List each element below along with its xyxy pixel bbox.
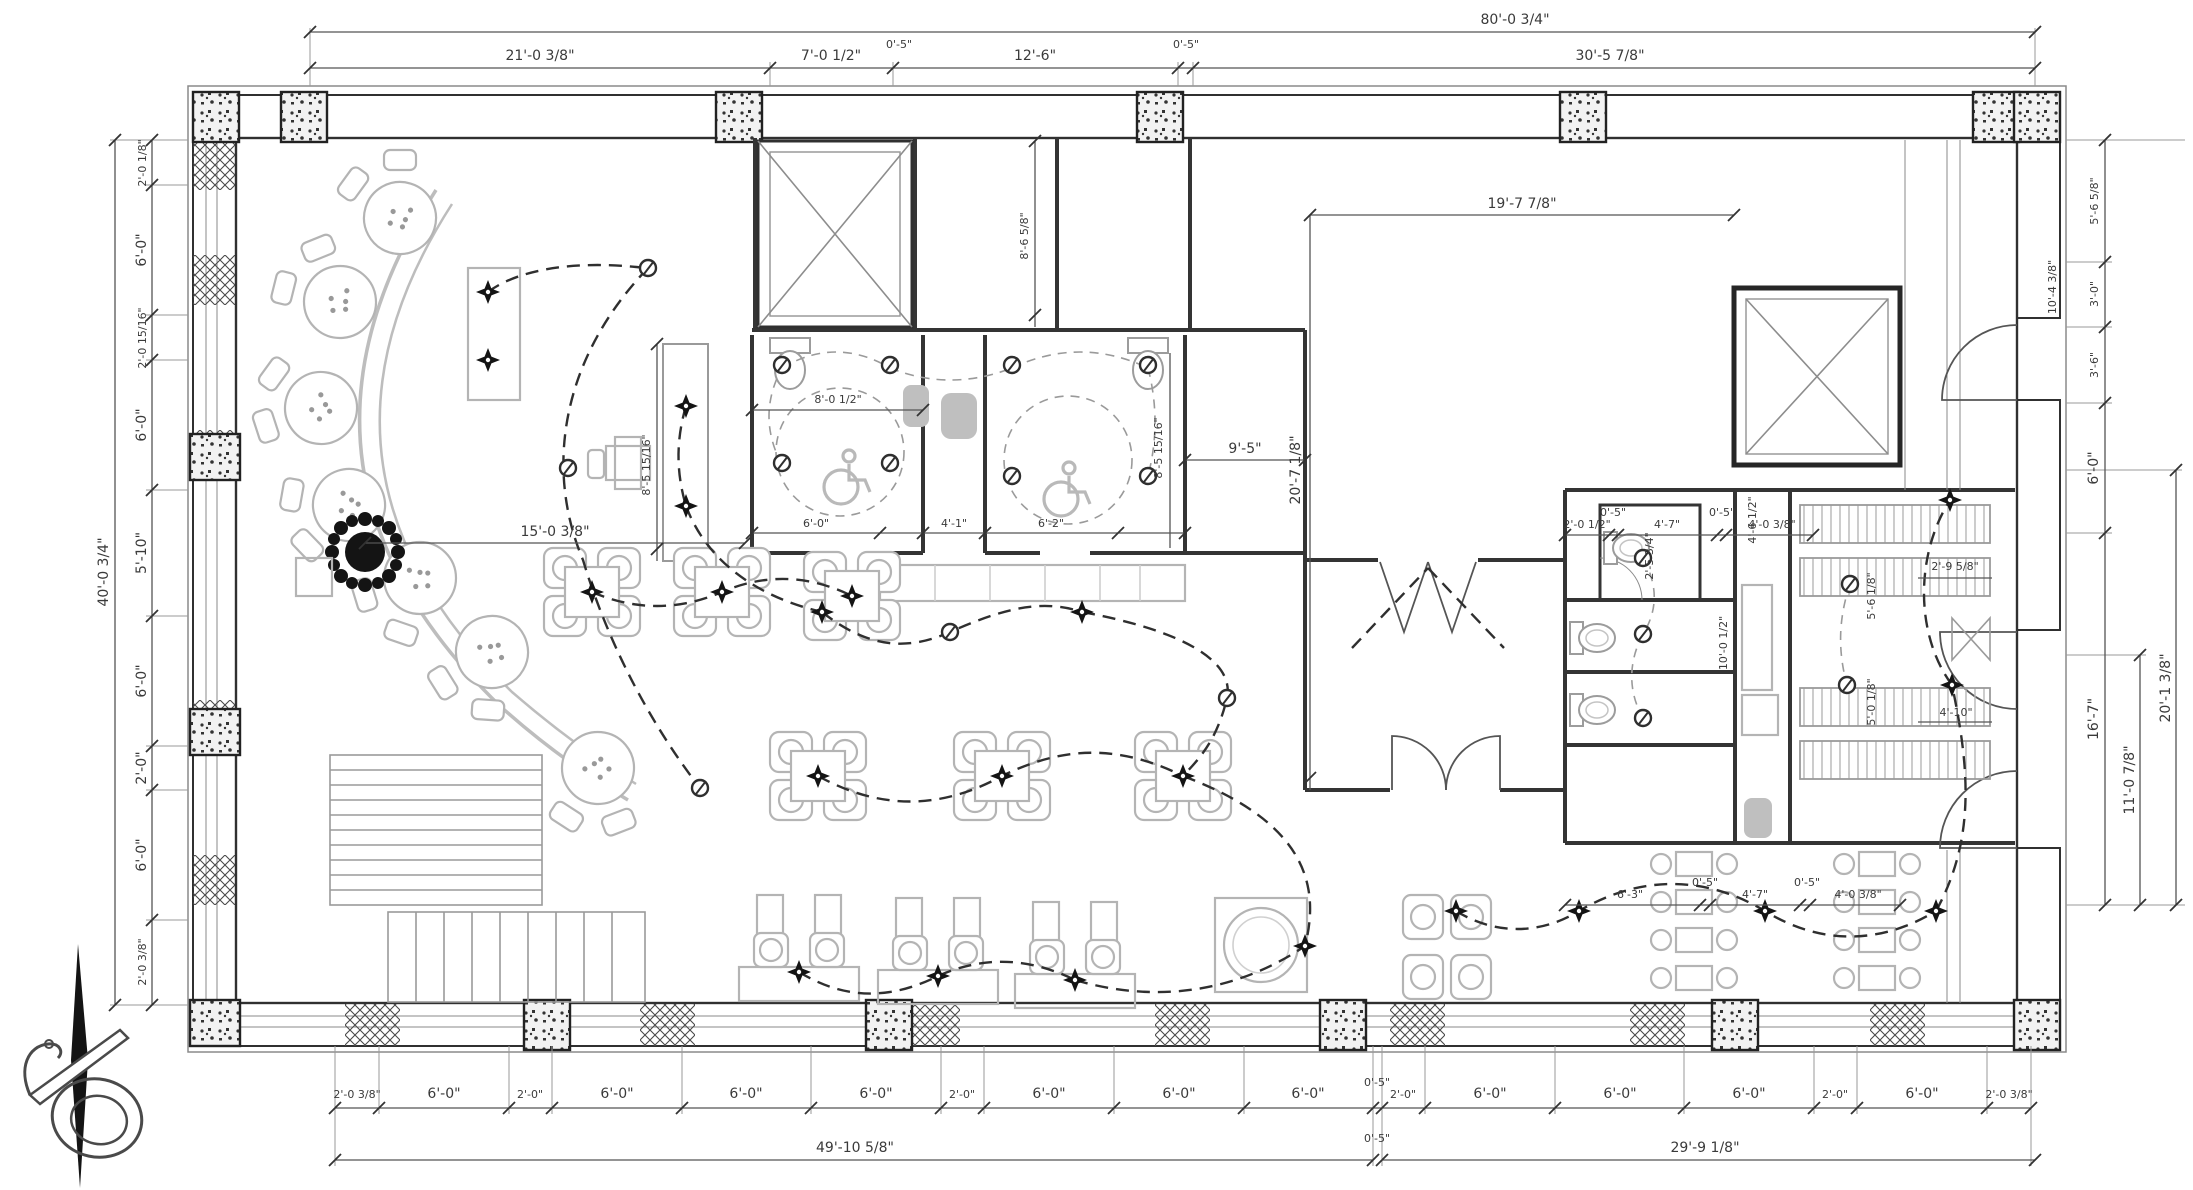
dim-label: 8'-0 1/2" [814, 393, 861, 406]
dim-label: 9'-5" [1228, 441, 1261, 457]
dim-label: 0'-5" [1364, 1132, 1390, 1145]
dim-label: 30'-5 7/8" [1575, 48, 1644, 64]
dim-label: 19'-7 7/8" [1487, 196, 1556, 212]
dim-label: 6'-2" [1038, 517, 1064, 530]
dim-label: 4'-7" [1654, 518, 1680, 531]
dim-label: 0'-5" [1692, 876, 1718, 889]
dim-label: 6'-0" [134, 408, 150, 441]
elevator-shaft-icon [758, 141, 912, 327]
dim-label: 6'-0" [803, 517, 829, 530]
dim-label: 2'-0" [1390, 1088, 1416, 1101]
dim-label: 10'-0 1/2" [1717, 616, 1730, 670]
dim-label: 2'-0 1/2" [1563, 518, 1610, 531]
dim-label: 11'-0 7/8" [2122, 745, 2138, 814]
dim-label: 2'-0" [1822, 1088, 1848, 1101]
dim-label: 2'-0" [134, 751, 150, 784]
dim-label: 6'-0" [1905, 1086, 1938, 1102]
sink-icon [1744, 798, 1772, 838]
dim-label: 2'-5 3/4" [1643, 532, 1656, 579]
dim-label: 29'-9 1/8" [1670, 1140, 1739, 1156]
dim-label: 5'-6 1/8" [1865, 572, 1878, 619]
plant-icon [325, 512, 405, 592]
dim-label: 20'-1 3/8" [2158, 653, 2174, 722]
dim-label: 10'-4 3/8" [2046, 260, 2059, 314]
dim-label: 5'-6 5/8" [2088, 177, 2101, 224]
dim-label: 2'-9 5/8" [1931, 560, 1978, 573]
dim-label: 2'-0" [949, 1088, 975, 1101]
dim-label: 2'-0 3/8" [1985, 1088, 2032, 1101]
dim-label: 8'-6 5/8" [1018, 212, 1031, 259]
dim-label: 16'-7" [2086, 698, 2102, 740]
dim-label: 6'-0" [1032, 1086, 1065, 1102]
dim-label: 4'-1" [941, 517, 967, 530]
dim-label: 49'-10 5/8" [816, 1140, 894, 1156]
dim-label: 2'-0 15/16" [136, 307, 149, 368]
dim-label: 0'-5" [1600, 506, 1626, 519]
dim-label: 0'-5" [886, 38, 912, 51]
dim-label: 15'-0 3/8" [520, 524, 589, 540]
dim-label: 0'-5" [1709, 506, 1735, 519]
dim-label: 0'-5" [1173, 38, 1199, 51]
dim-label: 6'-0" [1732, 1086, 1765, 1102]
dim-label: 4'-0 3/8" [1834, 888, 1881, 901]
dim-label: 21'-0 3/8" [505, 48, 574, 64]
dim-label: 7'-0 1/2" [801, 48, 861, 64]
dim-label: 6'-0" [1162, 1086, 1195, 1102]
sink-icon [903, 385, 929, 427]
dim-label: 2'-0" [517, 1088, 543, 1101]
dim-label: 0'-5" [1364, 1076, 1390, 1089]
dim-label: 6'-0" [859, 1086, 892, 1102]
dim-label: 5'-0 1/8" [1865, 678, 1878, 725]
dim-label: 6'-0" [729, 1086, 762, 1102]
dim-label: 6'-0" [134, 233, 150, 266]
dim-label: 40'-0 3/4" [96, 537, 112, 606]
elevator-shaft-icon [1734, 288, 1900, 465]
dim-label: 6'-3" [1617, 888, 1643, 901]
dim-label: 4'-7" [1742, 888, 1768, 901]
dim-label: 3'-0" [2088, 281, 2101, 307]
dim-label: 6'-0" [134, 664, 150, 697]
dim-label: 2'-0 3/8" [136, 938, 149, 985]
dim-label: 5'-10" [134, 532, 150, 574]
dim-label: 3'-6" [2088, 352, 2101, 378]
dim-label: 6'-0" [2086, 451, 2102, 484]
dim-label: 0'-5" [1794, 876, 1820, 889]
dim-label: 20'-7 1/8" [1288, 435, 1304, 504]
dim-label: 6'-0" [1603, 1086, 1636, 1102]
dim-label: 80'-0 3/4" [1480, 12, 1549, 28]
dim-label: 12'-6" [1014, 48, 1056, 64]
dim-label: 8'-5 15/16" [1152, 417, 1165, 478]
dim-label: 6'-0" [427, 1086, 460, 1102]
dim-label: 2'-0 3/8" [333, 1088, 380, 1101]
canvas: 80'-0 3/4" 21'-0 3/8" 7'-0 1/2" 0'-5" 12… [0, 0, 2193, 1190]
sink-icon [941, 393, 977, 439]
dim-label: 8'-5 15/16" [640, 434, 653, 495]
floor-plan-drawing: 80'-0 3/4" 21'-0 3/8" 7'-0 1/2" 0'-5" 12… [0, 0, 2193, 1190]
dim-label: 2'-0 1/8" [136, 139, 149, 186]
dim-label: 6'-0" [1473, 1086, 1506, 1102]
dim-label: 6'-0" [1291, 1086, 1324, 1102]
dim-label: 4'-10" [1939, 706, 1972, 719]
dim-label: 6'-0" [134, 838, 150, 871]
dim-label: 6'-0" [600, 1086, 633, 1102]
dim-label: 4'-6 1/2" [1746, 496, 1759, 543]
